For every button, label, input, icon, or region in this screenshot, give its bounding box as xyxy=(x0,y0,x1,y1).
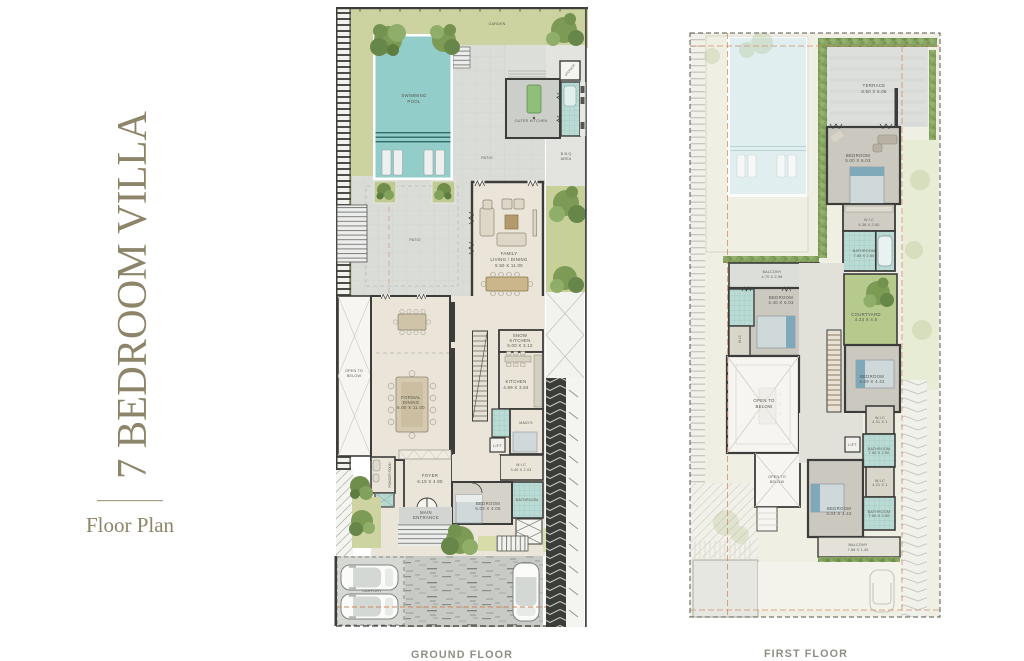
svg-text:PATIO: PATIO xyxy=(409,238,421,242)
svg-text:8.50 X 6.06: 8.50 X 6.06 xyxy=(861,89,887,94)
svg-text:BALCONY: BALCONY xyxy=(848,543,867,547)
svg-text:4.99 X 3.84: 4.99 X 3.84 xyxy=(503,385,529,390)
svg-text:GARDEN: GARDEN xyxy=(489,22,506,26)
svg-text:OPEN TO: OPEN TO xyxy=(753,398,775,403)
svg-text:OUTER KITCHEN: OUTER KITCHEN xyxy=(515,119,548,123)
svg-text:FAMILY: FAMILY xyxy=(501,251,518,256)
svg-text:7.65 X 2.50: 7.65 X 2.50 xyxy=(868,451,889,455)
svg-text:5.03 X 4.06: 5.03 X 4.06 xyxy=(475,506,501,511)
svg-text:SWIMMING: SWIMMING xyxy=(401,93,427,98)
svg-text:4.23 X 4.5: 4.23 X 4.5 xyxy=(855,317,878,322)
svg-text:KITCHEN: KITCHEN xyxy=(506,379,527,384)
svg-text:B.B.Q: B.B.Q xyxy=(561,152,572,156)
svg-text:Floor Plan: Floor Plan xyxy=(86,513,175,537)
svg-text:W.I.C: W.I.C xyxy=(864,218,874,222)
svg-text:4.04 X 4.42: 4.04 X 4.42 xyxy=(826,511,852,516)
svg-text:4.21 X 1: 4.21 X 1 xyxy=(872,420,887,424)
svg-text:7.65 X 2.50: 7.65 X 2.50 xyxy=(868,514,889,518)
svg-text:POWDER ROOM: POWDER ROOM xyxy=(388,462,392,487)
svg-text:7.65 X 2.50: 7.65 X 2.50 xyxy=(853,254,874,258)
svg-text:6.00 X 11.00: 6.00 X 11.00 xyxy=(397,405,425,410)
svg-text:4.21 X 1: 4.21 X 1 xyxy=(872,483,887,487)
svg-text:6.00 X 3.12: 6.00 X 3.12 xyxy=(507,343,533,348)
svg-text:FIRST FLOOR: FIRST FLOOR xyxy=(764,648,848,660)
svg-text:ENTRANCE: ENTRANCE xyxy=(413,515,439,520)
svg-text:BALCONY: BALCONY xyxy=(762,270,781,274)
svg-text:5.00 X 6.03: 5.00 X 6.03 xyxy=(845,158,871,163)
svg-text:4.09 X 4.42: 4.09 X 4.42 xyxy=(859,379,885,384)
svg-text:BATHROOM: BATHROOM xyxy=(853,249,876,253)
svg-text:BELOW: BELOW xyxy=(347,374,362,378)
svg-text:LIFT: LIFT xyxy=(493,444,502,448)
svg-text:W.I.C: W.I.C xyxy=(516,463,526,467)
svg-text:BELOW: BELOW xyxy=(770,480,785,484)
svg-text:LIFT: LIFT xyxy=(848,443,857,447)
svg-text:W.I.C: W.I.C xyxy=(738,334,742,342)
svg-text:OPEN TO: OPEN TO xyxy=(768,475,786,479)
svg-text:POOL: POOL xyxy=(407,99,420,104)
svg-text:FOYER: FOYER xyxy=(422,473,438,478)
svg-text:7 BEDROOM VILLA: 7 BEDROOM VILLA xyxy=(110,110,156,479)
svg-text:6.15 X 4.90: 6.15 X 4.90 xyxy=(417,479,443,484)
svg-text:TERRACE: TERRACE xyxy=(863,83,886,88)
svg-text:MAID'S: MAID'S xyxy=(519,421,533,425)
svg-text:4.40 X 6.03: 4.40 X 6.03 xyxy=(768,300,794,305)
svg-text:LIVING / DINING: LIVING / DINING xyxy=(490,257,528,262)
svg-text:OPEN TO: OPEN TO xyxy=(345,369,363,373)
svg-text:7.86 X 1.40: 7.86 X 1.40 xyxy=(847,548,868,552)
svg-text:4.70 X 2.96: 4.70 X 2.96 xyxy=(761,275,782,279)
svg-text:BELOW: BELOW xyxy=(755,404,773,409)
svg-text:CARPORT: CARPORT xyxy=(362,589,382,593)
svg-text:5.50 X 11.00: 5.50 X 11.00 xyxy=(495,263,523,268)
svg-text:AREA: AREA xyxy=(561,157,572,161)
svg-text:PATIO: PATIO xyxy=(481,156,493,160)
svg-text:BATHROOM: BATHROOM xyxy=(516,498,539,502)
svg-text:GROUND FLOOR: GROUND FLOOR xyxy=(411,649,513,661)
svg-text:3.40 X 2.03: 3.40 X 2.03 xyxy=(510,468,531,472)
svg-text:4.38 X 2.00: 4.38 X 2.00 xyxy=(858,223,879,227)
